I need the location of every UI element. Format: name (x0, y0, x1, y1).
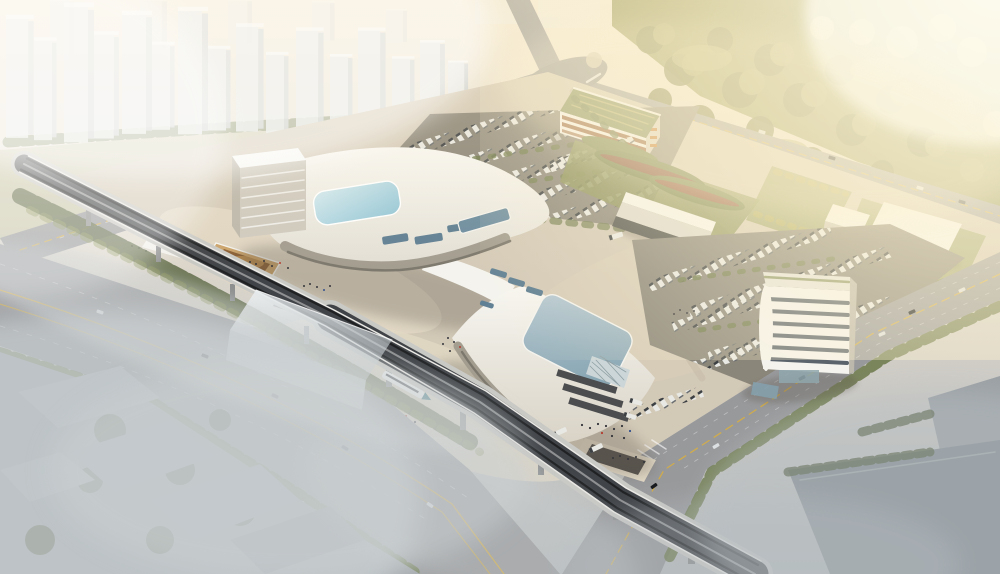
glass-annex (779, 370, 819, 383)
aerial-rendering (0, 0, 1000, 574)
atmosphere (0, 0, 1000, 574)
rendering-canvas (0, 0, 1000, 574)
